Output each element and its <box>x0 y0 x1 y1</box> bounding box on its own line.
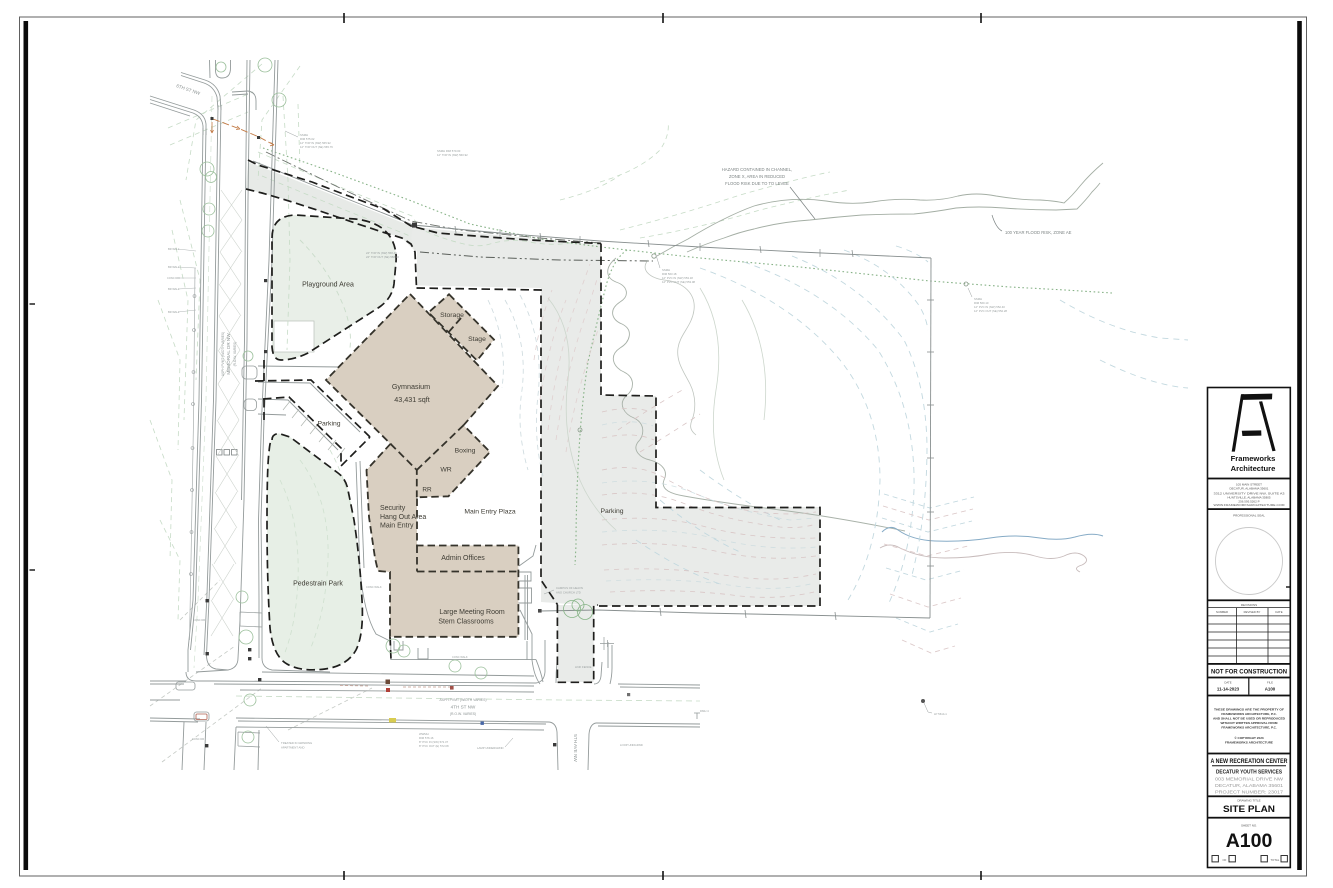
svg-text:12" PVC OUT (SE) 553.08: 12" PVC OUT (SE) 553.08 <box>662 280 695 284</box>
svg-text:Large Meeting Room: Large Meeting Room <box>439 609 505 616</box>
svg-text:CONC DR: CONC DR <box>192 737 204 741</box>
svg-text:Architecture: Architecture <box>1231 464 1276 473</box>
svg-text:REVISED BY: REVISED BY <box>1244 610 1261 614</box>
svg-text:FRAMEWORKS ARCHITECTURE: FRAMEWORKS ARCHITECTURE <box>1225 741 1273 745</box>
svg-text:A NEW RECREATION CENTER: A NEW RECREATION CENTER <box>1211 758 1288 765</box>
svg-text:FLOOD RISK DUE TO TO LEVEE: FLOOD RISK DUE TO TO LEVEE <box>725 181 789 186</box>
svg-text:FRAMEWORKS ARCHITECTURE, P.C.: FRAMEWORKS ARCHITECTURE, P.C. <box>1221 712 1276 716</box>
svg-text:THESE DRAWINGS ARE THE PROPERT: THESE DRAWINGS ARE THE PROPERTY OF <box>1214 708 1284 712</box>
svg-text:11-14-2023: 11-14-2023 <box>1217 687 1240 692</box>
svg-text:Playground Area: Playground Area <box>302 282 354 289</box>
svg-text:NUMBER: NUMBER <box>1216 610 1228 614</box>
svg-text:CONC DRI: CONC DRI <box>167 276 180 280</box>
svg-text:100 YEAR FLOOD RISK, ZONE AE: 100 YEAR FLOOD RISK, ZONE AE <box>1005 230 1072 235</box>
svg-text:24" TOP OUT (SE) 558.10: 24" TOP OUT (SE) 558.10 <box>366 255 399 259</box>
svg-text:ASPH PVMT (WIDTH VARIES): ASPH PVMT (WIDTH VARIES) <box>440 698 487 702</box>
svg-text:12" TOP IN (NW) 560.92: 12" TOP IN (NW) 560.92 <box>437 153 468 157</box>
svg-text:12" PVC OUT (SE) 552.28: 12" PVC OUT (SE) 552.28 <box>974 309 1007 313</box>
svg-text:Stage: Stage <box>468 336 486 343</box>
svg-text:WITHOUT WRITTEN APPROVAL FROM: WITHOUT WRITTEN APPROVAL FROM <box>1221 721 1278 725</box>
svg-text:HAZARD CONTAINED IN CHANNEL,: HAZARD CONTAINED IN CHANNEL, <box>722 167 792 172</box>
svg-text:LP 5614-1: LP 5614-1 <box>934 712 947 716</box>
svg-text:Hang Out Area: Hang Out Area <box>380 514 426 521</box>
svg-text:Stem Classrooms: Stem Classrooms <box>438 619 494 626</box>
svg-text:Admin Offices: Admin Offices <box>441 555 485 562</box>
svg-text:PROFESSIONAL SEAL: PROFESSIONAL SEAL <box>1233 514 1265 518</box>
svg-text:DECATUR, ALABAMA 35601: DECATUR, ALABAMA 35601 <box>1230 486 1269 490</box>
svg-text:LOOP UNDGRND: LOOP UNDGRND <box>620 743 643 747</box>
svg-text:WR: WR <box>440 467 451 474</box>
svg-text:FILE: FILE <box>1267 681 1273 685</box>
svg-text:APARTMENT AND: APARTMENT AND <box>281 746 304 750</box>
svg-text:4TH ST NW: 4TH ST NW <box>451 705 476 710</box>
svg-text:ZONE X, AREA IN REDUCED: ZONE X, AREA IN REDUCED <box>729 174 785 179</box>
svg-text:TREATED IN GRINDING: TREATED IN GRINDING <box>281 741 312 745</box>
svg-text:Storage: Storage <box>440 312 464 319</box>
svg-text:CAMPUS OF HEAVN: CAMPUS OF HEAVN <box>556 586 583 590</box>
svg-text:RR: RR <box>422 487 432 494</box>
svg-text:Main Entry Plaza: Main Entry Plaza <box>464 509 516 516</box>
svg-text:5TH AVE NW: 5TH AVE NW <box>573 734 578 762</box>
svg-text:AND SHALL NOT BE USED OR REPRO: AND SHALL NOT BE USED OR REPRODUCED <box>1213 717 1286 721</box>
svg-text:MEMORIAL DR NW: MEMORIAL DR NW <box>226 333 231 375</box>
svg-text:TOTAL: TOTAL <box>1271 858 1280 862</box>
svg-text:CONC DR: CONC DR <box>193 618 205 622</box>
svg-text:DATE: DATE <box>1224 681 1231 685</box>
svg-text:WWW.FRAMEWORKSARCHITECTURE.COM: WWW.FRAMEWORKSARCHITECTURE.COM <box>1214 503 1286 507</box>
svg-text:(R.O.W. VARIES): (R.O.W. VARIES) <box>450 712 476 716</box>
svg-text:PROJECT NUMBER: 23017: PROJECT NUMBER: 23017 <box>1215 789 1284 794</box>
svg-text:DECATUR YOUTH SERVICES: DECATUR YOUTH SERVICES <box>1216 770 1282 776</box>
svg-text:DECATUR, ALABAMA 35601: DECATUR, ALABAMA 35601 <box>1215 783 1284 788</box>
svg-text:© COPYRIGHT 2023: © COPYRIGHT 2023 <box>1234 736 1264 740</box>
svg-text:DATE: DATE <box>1275 610 1282 614</box>
svg-text:CONC WALK: CONC WALK <box>366 585 382 589</box>
svg-text:SHEET NO.: SHEET NO. <box>1241 823 1257 827</box>
svg-text:Main Entry: Main Entry <box>380 523 414 530</box>
svg-text:SITE PLAN: SITE PLAN <box>1223 803 1275 814</box>
svg-text:REVISIONS: REVISIONS <box>1241 603 1257 607</box>
svg-text:A100: A100 <box>1265 687 1276 692</box>
svg-text:Parking: Parking <box>317 421 340 428</box>
svg-text:FRAMEWORKS ARCHITECTURE, P.C.: FRAMEWORKS ARCHITECTURE, P.C. <box>1221 726 1276 730</box>
svg-text:003 MEMORIAL DRIVE NW: 003 MEMORIAL DRIVE NW <box>1215 777 1284 782</box>
svg-text:43,431 sqft: 43,431 sqft <box>394 395 430 404</box>
svg-text:Boxing: Boxing <box>455 448 476 455</box>
svg-text:Frameworks: Frameworks <box>1231 454 1276 463</box>
svg-text:LAMP UNDERGRND: LAMP UNDERGRND <box>477 746 504 750</box>
svg-text:Parking: Parking <box>600 508 623 515</box>
svg-text:Security: Security <box>380 505 406 512</box>
svg-text:(R.O.W. VARIES): (R.O.W. VARIES) <box>233 342 237 367</box>
svg-text:A100: A100 <box>1226 830 1273 852</box>
svg-text:ANO CHURCH LTD: ANO CHURCH LTD <box>556 591 581 595</box>
svg-text:NOT FOR CONSTRUCTION: NOT FOR CONSTRUCTION <box>1211 669 1287 676</box>
svg-text:ASPH PVMT (WIDTH VARIES): ASPH PVMT (WIDTH VARIES) <box>221 332 225 376</box>
svg-text:LINK FENCE: LINK FENCE <box>575 665 592 669</box>
svg-text:Gymnasium: Gymnasium <box>392 382 430 391</box>
svg-text:Pedestrain Park: Pedestrain Park <box>293 581 343 588</box>
svg-text:12" TOP OUT (SE) 565.76: 12" TOP OUT (SE) 565.76 <box>300 145 333 149</box>
svg-text:CONC WALK: CONC WALK <box>452 655 468 659</box>
svg-text:DMH 4: DMH 4 <box>700 709 709 713</box>
svg-text:OF: OF <box>1223 858 1227 862</box>
svg-text:8" PVC OUT (E) 572.08: 8" PVC OUT (E) 572.08 <box>419 744 449 748</box>
